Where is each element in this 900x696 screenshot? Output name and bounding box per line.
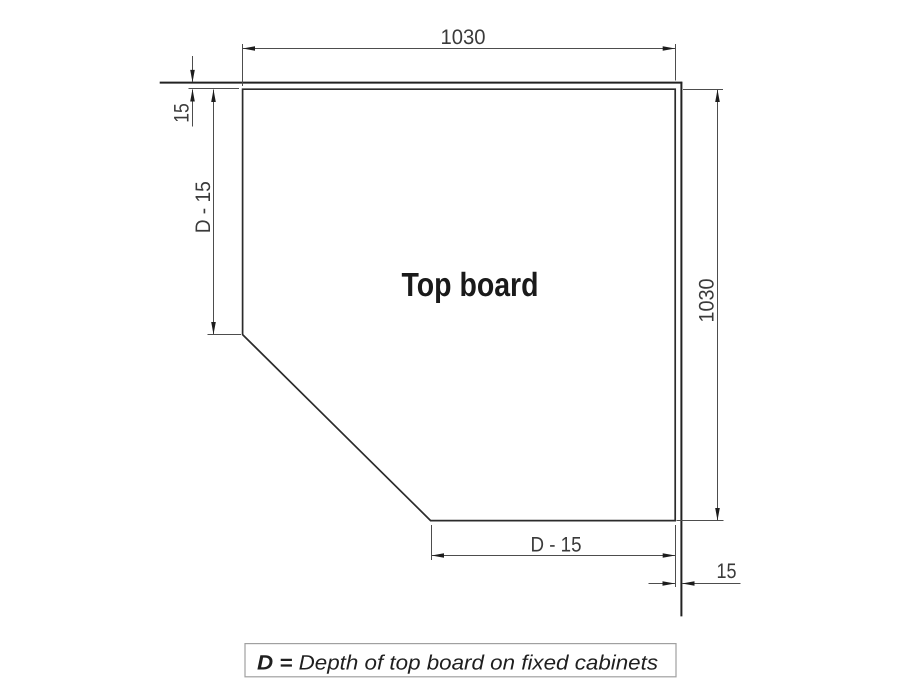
svg-text:1030: 1030 bbox=[441, 26, 486, 49]
svg-text:15: 15 bbox=[717, 560, 737, 583]
svg-text:1030: 1030 bbox=[696, 279, 719, 323]
svg-text:D - 15: D - 15 bbox=[192, 181, 215, 233]
svg-text:D = Depth of top board on fixe: D = Depth of top board on fixed cabinets bbox=[257, 652, 658, 675]
svg-text:D - 15: D - 15 bbox=[531, 534, 582, 557]
svg-text:15: 15 bbox=[170, 103, 193, 123]
svg-text:Top board: Top board bbox=[402, 267, 539, 304]
